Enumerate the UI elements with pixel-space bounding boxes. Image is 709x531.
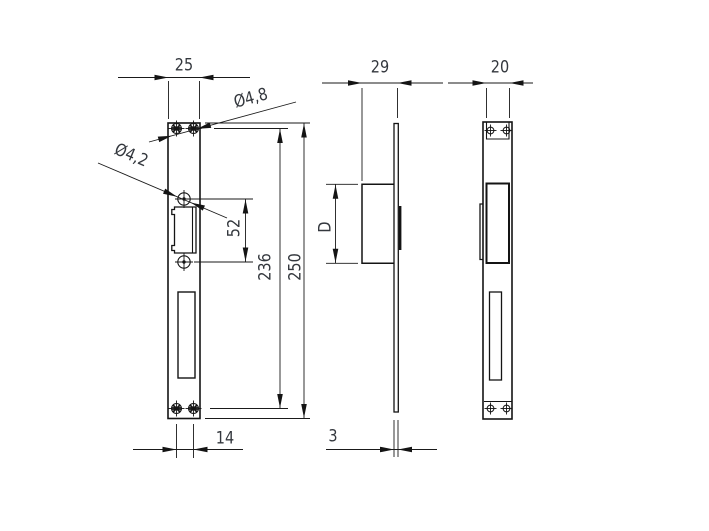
latch-screw-hole-upper [175, 190, 193, 208]
dim-29 [322, 80, 443, 181]
back-latch-opening [487, 184, 510, 264]
back-bottom-left-hole-marker [485, 403, 497, 415]
dim-250-label: 250 [288, 253, 305, 281]
dim-236-label: 236 [258, 253, 275, 281]
front-view [168, 121, 202, 419]
latch-screw-hole-lower [175, 253, 193, 271]
back-top-right-hole-marker [501, 125, 513, 137]
dim-20 [448, 80, 533, 118]
keeper-lip-edge [399, 206, 401, 250]
dim-3-label: 3 [328, 429, 337, 446]
dim-D-label: D [318, 221, 335, 232]
strike-box-profile [362, 184, 394, 263]
drawing-canvas: 25 Ø4,8 Ø4,2 52 236 250 14 29 D 3 20 [0, 0, 709, 531]
dim-236 [210, 129, 288, 409]
dim-3 [326, 420, 437, 457]
dim-25-label: 25 [175, 58, 193, 75]
plate-edge-profile [394, 124, 398, 413]
bottom-right-screw-hole-marker [186, 401, 202, 417]
back-bottom-right-hole-marker [501, 403, 513, 415]
front-slot [178, 292, 195, 378]
dim-29-label: 29 [371, 60, 389, 77]
dim-20-label: 20 [491, 60, 509, 77]
dim-25 [118, 75, 250, 119]
dim-52-label: 52 [227, 219, 244, 237]
side-view [362, 124, 401, 413]
leader-dia-4-2 [98, 163, 227, 218]
back-view [480, 122, 513, 419]
dim-14-label: 14 [216, 431, 234, 448]
drawing-linework [0, 0, 709, 531]
dimensions [98, 75, 533, 458]
back-plate-outline [483, 122, 512, 419]
back-slot [490, 292, 502, 380]
leader-dia-4-8 [149, 102, 296, 142]
bottom-left-screw-hole-marker [169, 401, 185, 417]
